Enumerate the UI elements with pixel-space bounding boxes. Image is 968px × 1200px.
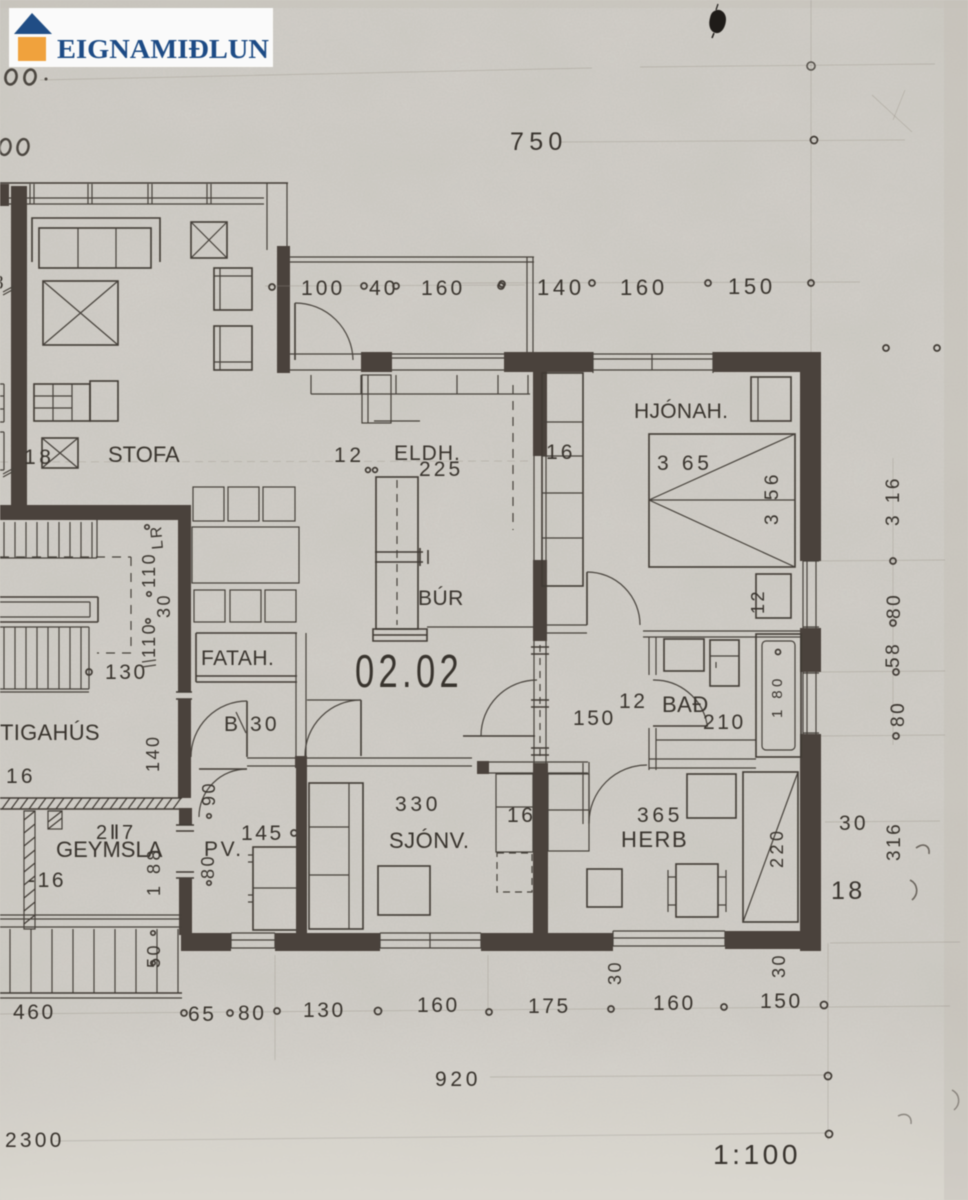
- svg-text:LR: LR: [148, 523, 167, 550]
- svg-text:225: 225: [419, 458, 463, 481]
- svg-text:160: 160: [653, 992, 696, 1015]
- svg-text:16: 16: [546, 441, 576, 464]
- svg-text:EIGNAMIÐLUN: EIGNAMIÐLUN: [57, 34, 270, 64]
- svg-text:150: 150: [573, 707, 616, 730]
- svg-text:140: 140: [143, 734, 163, 772]
- svg-text:330: 330: [395, 793, 441, 816]
- svg-text:FATAH.: FATAH.: [201, 647, 274, 670]
- svg-text:1 88: 1 88: [144, 847, 164, 896]
- svg-text:HERB: HERB: [621, 827, 688, 852]
- svg-text:65: 65: [188, 1003, 217, 1026]
- svg-text:30: 30: [154, 593, 174, 618]
- svg-text:460: 460: [13, 1001, 56, 1024]
- svg-text:210: 210: [703, 711, 746, 734]
- svg-text:220: 220: [767, 827, 787, 868]
- svg-text:80: 80: [198, 854, 218, 879]
- svg-text:140: 140: [537, 275, 585, 300]
- svg-text:3 65: 3 65: [657, 452, 713, 475]
- svg-text:100: 100: [301, 277, 345, 300]
- svg-text:3 56: 3 56: [762, 470, 783, 525]
- svg-text:160: 160: [620, 275, 668, 300]
- svg-text:175: 175: [528, 995, 571, 1018]
- svg-text:150: 150: [728, 274, 776, 299]
- svg-text:12: 12: [748, 589, 768, 614]
- svg-text:STOFA: STOFA: [108, 442, 180, 467]
- svg-text:110: 110: [139, 622, 159, 658]
- svg-text:02.02: 02.02: [355, 645, 463, 697]
- svg-text:STIGAHÚS: STIGAHÚS: [0, 720, 100, 745]
- svg-text:2300: 2300: [5, 1129, 65, 1152]
- svg-text:B 30: B 30: [224, 713, 280, 736]
- svg-text:30: 30: [839, 812, 869, 835]
- svg-text:130: 130: [303, 999, 346, 1022]
- svg-text:-16: -16: [28, 869, 66, 892]
- svg-text:130: 130: [105, 661, 148, 684]
- svg-text:BAÐ: BAÐ: [662, 692, 709, 717]
- svg-text:58: 58: [883, 642, 904, 668]
- svg-text:BÚR: BÚR: [418, 587, 464, 610]
- svg-text:1:100: 1:100: [713, 1139, 801, 1170]
- svg-text:SJÓNV.: SJÓNV.: [389, 828, 469, 853]
- svg-text:145: 145: [241, 822, 284, 845]
- svg-text:18: 18: [24, 446, 55, 469]
- svg-text:920: 920: [435, 1068, 481, 1091]
- svg-text:16: 16: [6, 765, 36, 788]
- svg-text:80: 80: [238, 1002, 267, 1025]
- svg-text:30: 30: [605, 960, 625, 985]
- svg-text:18: 18: [831, 877, 865, 905]
- svg-text:30: 30: [769, 953, 789, 978]
- svg-text:3 16: 3 16: [883, 475, 904, 526]
- svg-text:316: 316: [884, 822, 905, 861]
- svg-text:12: 12: [619, 690, 648, 713]
- svg-text:HJÓNAH.: HJÓNAH.: [634, 400, 728, 423]
- svg-text:365: 365: [637, 804, 683, 827]
- svg-text:12: 12: [334, 444, 365, 467]
- svg-text:80: 80: [884, 593, 905, 619]
- svg-text:160: 160: [421, 277, 465, 300]
- svg-text:160: 160: [417, 994, 460, 1017]
- svg-text:80: 80: [888, 701, 909, 727]
- svg-text:1 80: 1 80: [769, 675, 786, 718]
- svg-text:150: 150: [760, 990, 803, 1013]
- svg-text:90: 90: [199, 781, 219, 806]
- svg-text:750: 750: [510, 128, 568, 156]
- svg-text:110: 110: [139, 552, 159, 588]
